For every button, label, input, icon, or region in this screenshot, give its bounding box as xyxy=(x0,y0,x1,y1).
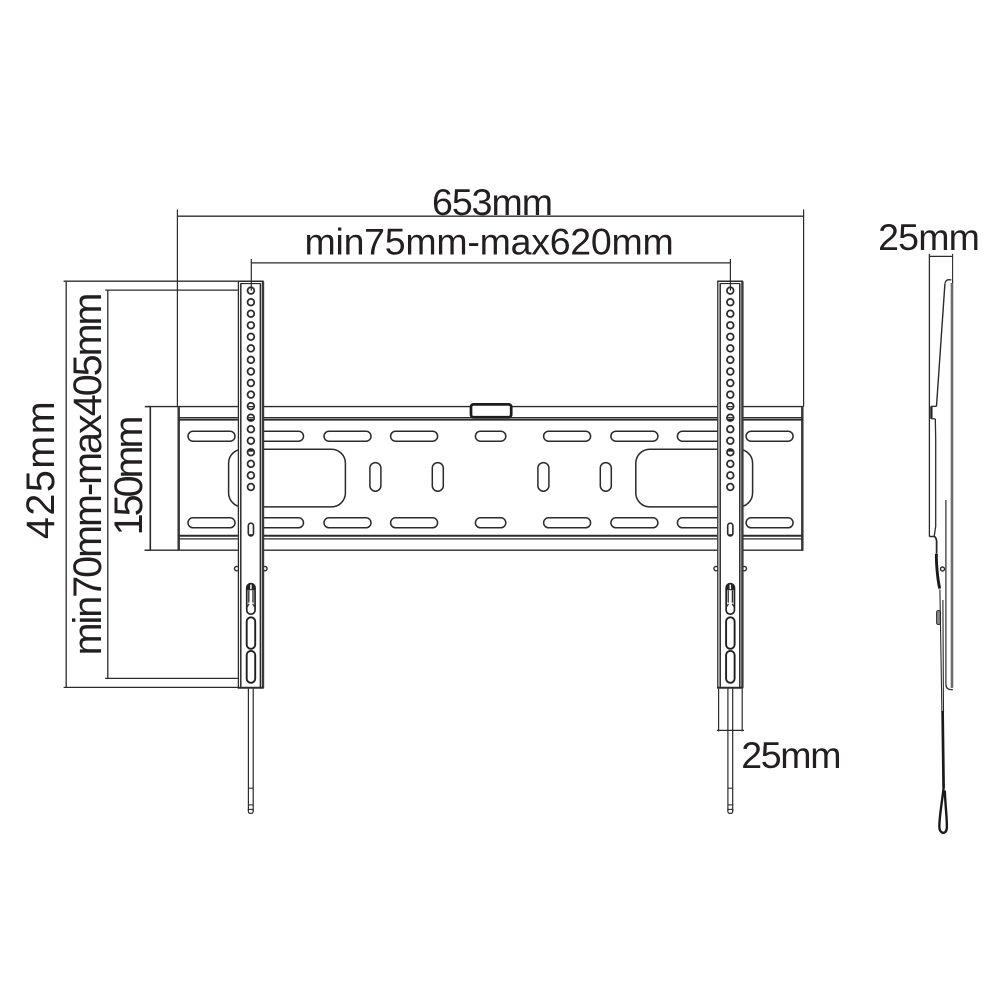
svg-text:25mm: 25mm xyxy=(878,216,979,258)
svg-text:min75mm-max620mm: min75mm-max620mm xyxy=(305,220,674,262)
svg-text:653mm: 653mm xyxy=(432,181,552,223)
svg-text:150mm: 150mm xyxy=(107,418,151,536)
svg-text:min70mm-max405mm: min70mm-max405mm xyxy=(66,294,110,655)
svg-text:25mm: 25mm xyxy=(741,734,840,776)
svg-text:425mm: 425mm xyxy=(19,400,63,539)
